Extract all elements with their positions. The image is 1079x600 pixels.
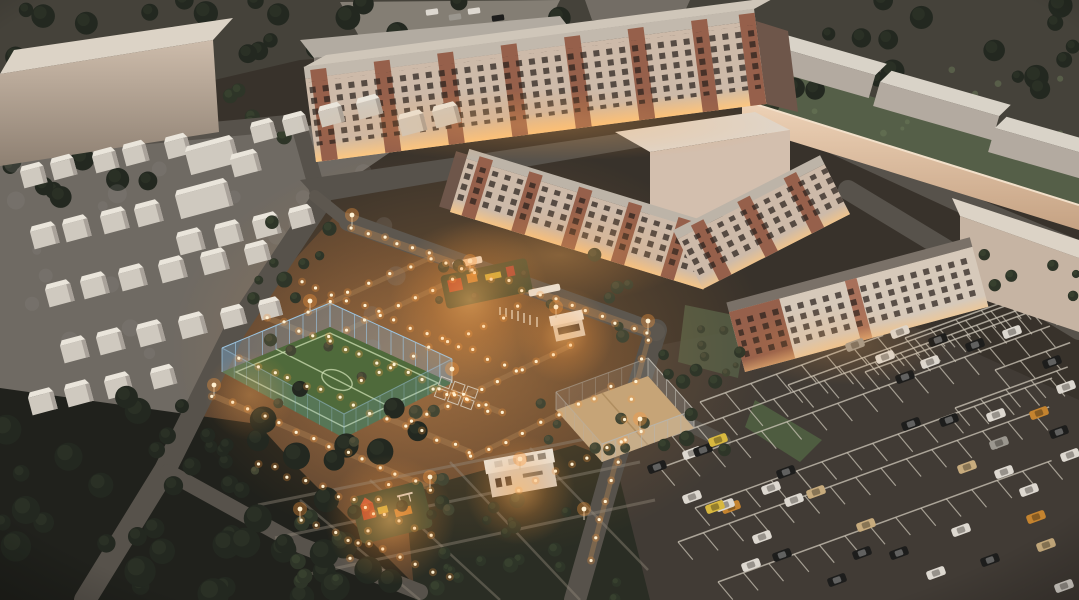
- aerial-rendering-canvas: [0, 0, 1079, 600]
- residential-complex-rendering: [0, 0, 1079, 600]
- vignette: [0, 0, 1079, 600]
- light-glow-overlays: [0, 0, 1079, 600]
